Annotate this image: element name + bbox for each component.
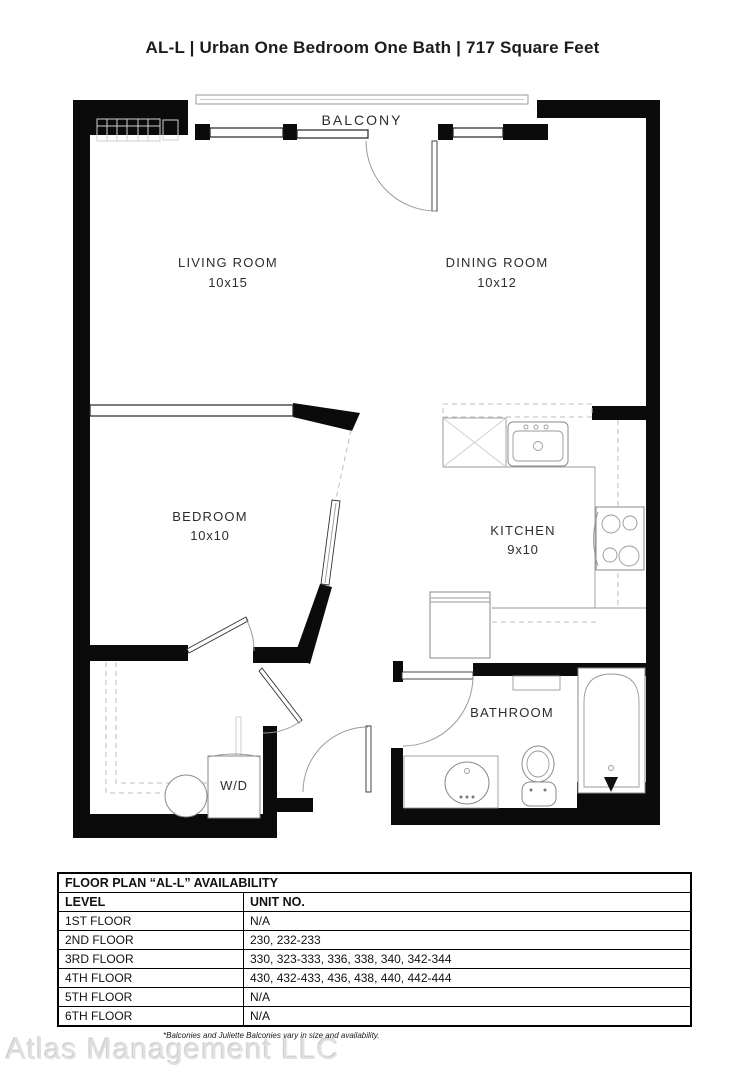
windows <box>90 128 503 416</box>
column-header-level: LEVEL <box>58 893 244 912</box>
bathroom-niche <box>513 676 560 690</box>
living-room-label: LIVING ROOM <box>178 255 278 270</box>
living-room-dims: 10x15 <box>208 275 247 290</box>
table-row: 1ST FLOOR N/A <box>58 912 691 931</box>
table-title: FLOOR PLAN “AL-L” AVAILABILITY <box>58 873 691 893</box>
refrigerator <box>430 592 490 658</box>
floorplan-sheet: AL-L | Urban One Bedroom One Bath | 717 … <box>0 0 745 1080</box>
stove <box>594 507 645 570</box>
units-cell: 430, 432-433, 436, 438, 440, 442-444 <box>244 969 692 988</box>
balcony-door <box>366 141 437 211</box>
bathroom-label: BATHROOM <box>470 705 554 720</box>
table-header-row: LEVEL UNIT NO. <box>58 893 691 912</box>
bedroom-glass-wall <box>90 405 293 416</box>
table-row: 2ND FLOOR 230, 232-233 <box>58 931 691 950</box>
bedroom-sliding-door <box>321 430 351 585</box>
kitchen-label: KITCHEN <box>490 523 555 538</box>
kitchen-dims: 9x10 <box>507 542 538 557</box>
toilet <box>522 746 556 806</box>
level-cell: 3RD FLOOR <box>58 950 244 969</box>
laundry-label: W/D <box>220 778 248 793</box>
floor-plan: BALCONY LIVING ROOM 10x15 DINING ROOM 10… <box>60 85 700 860</box>
balcony-sidelite <box>297 130 368 138</box>
water-heater <box>165 775 207 817</box>
bathroom-door <box>402 672 473 746</box>
page-title: AL-L | Urban One Bedroom One Bath | 717 … <box>0 38 745 58</box>
units-cell: N/A <box>244 1007 692 1027</box>
level-cell: 5TH FLOOR <box>58 988 244 1007</box>
entry-door <box>303 726 371 792</box>
dining-room-dims: 10x12 <box>477 275 516 290</box>
level-cell: 4TH FLOOR <box>58 969 244 988</box>
level-cell: 2ND FLOOR <box>58 931 244 950</box>
closet-door <box>259 668 302 733</box>
units-cell: N/A <box>244 988 692 1007</box>
table-row: 6TH FLOOR N/A <box>58 1007 691 1027</box>
column-header-unit-no: UNIT NO. <box>244 893 692 912</box>
footnote: *Balconies and Juliette Balconies vary i… <box>163 1031 379 1040</box>
level-cell: 6TH FLOOR <box>58 1007 244 1027</box>
dining-room-label: DINING ROOM <box>446 255 549 270</box>
window-living <box>210 128 283 137</box>
corner-cabinet <box>443 418 506 467</box>
kitchen-sink <box>508 422 568 466</box>
availability-table: FLOOR PLAN “AL-L” AVAILABILITY LEVEL UNI… <box>57 872 692 1027</box>
table-row: 3RD FLOOR 330, 323-333, 336, 338, 340, 3… <box>58 950 691 969</box>
bathtub <box>578 668 645 793</box>
balcony-label: BALCONY <box>322 112 403 128</box>
level-cell: 1ST FLOOR <box>58 912 244 931</box>
balcony-rail <box>196 95 528 104</box>
units-cell: 230, 232-233 <box>244 931 692 950</box>
window-dining <box>453 128 503 137</box>
table-title-row: FLOOR PLAN “AL-L” AVAILABILITY <box>58 873 691 893</box>
bedroom-label: BEDROOM <box>172 509 248 524</box>
units-cell: N/A <box>244 912 692 931</box>
units-cell: 330, 323-333, 336, 338, 340, 342-344 <box>244 950 692 969</box>
bedroom-door <box>187 617 254 653</box>
bedroom-dims: 10x10 <box>190 528 229 543</box>
table-row: 4TH FLOOR 430, 432-433, 436, 438, 440, 4… <box>58 969 691 988</box>
vanity-sink <box>404 756 498 808</box>
table-row: 5TH FLOOR N/A <box>58 988 691 1007</box>
